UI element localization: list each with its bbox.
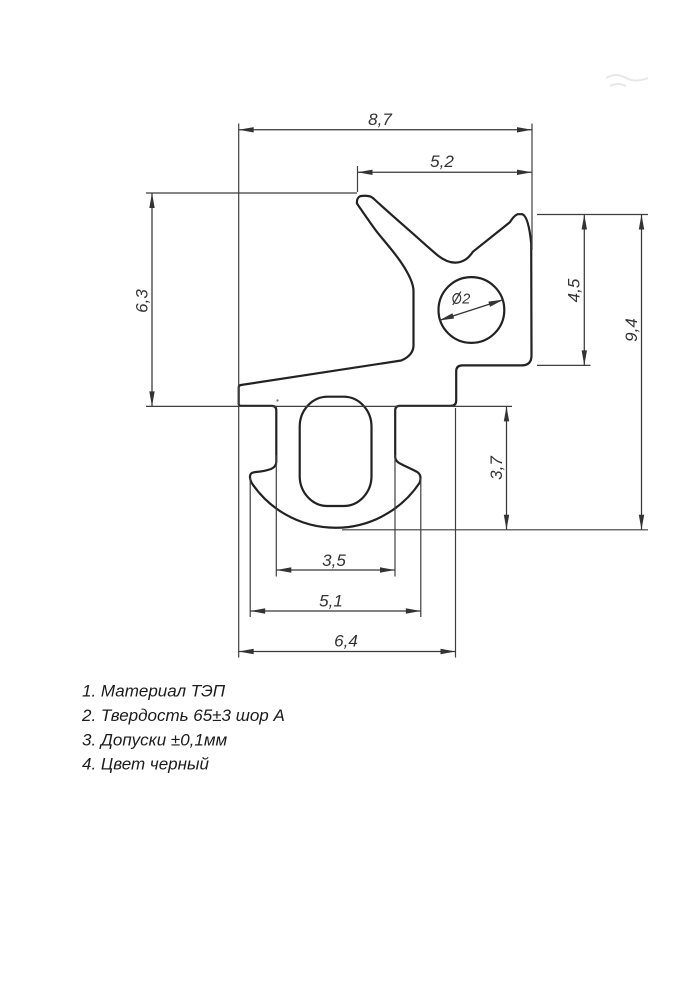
svg-text:8,7: 8,7 [368,110,392,129]
svg-text:3,5: 3,5 [322,551,346,570]
svg-text:9,4: 9,4 [622,318,641,342]
svg-text:6,4: 6,4 [334,632,358,651]
svg-text:5,1: 5,1 [319,592,343,611]
svg-text:1. Материал ТЭП: 1. Материал ТЭП [82,682,226,701]
svg-text:4,5: 4,5 [565,278,584,302]
svg-text:3,7: 3,7 [487,456,506,480]
svg-text:3. Допуски ±0,1мм: 3. Допуски ±0,1мм [82,730,228,749]
svg-text:6,3: 6,3 [133,289,152,313]
svg-text:2: 2 [461,292,470,308]
svg-text:2. Твердость 65±3 шор А: 2. Твердость 65±3 шор А [81,706,285,725]
svg-text:4. Цвет черный: 4. Цвет черный [82,755,209,774]
svg-text:5,2: 5,2 [430,152,454,171]
